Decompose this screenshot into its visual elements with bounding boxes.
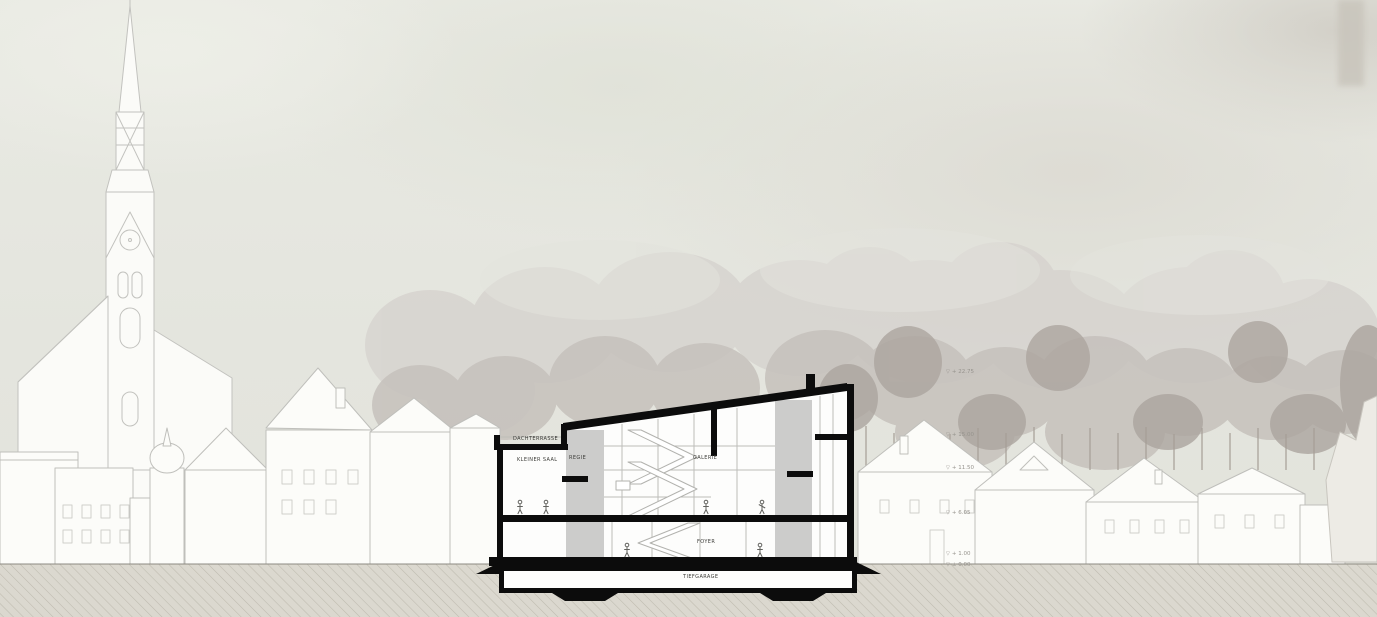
left-wall (497, 444, 503, 561)
elevation-marker: ▽ + 6.05 (946, 511, 970, 517)
elevation-marker: ▽ + 11.50 (946, 466, 974, 472)
level-triangle-icon: ▽ (946, 370, 950, 375)
elevation-value: + 15.00 (952, 433, 974, 439)
elevation-value: ± 0.00 (952, 563, 971, 569)
core-right-landing (787, 471, 813, 477)
stair-landing (616, 481, 630, 490)
level-triangle-icon: ▽ (946, 433, 950, 438)
mid-slab (503, 515, 847, 522)
elevation-value: + 11.50 (952, 466, 974, 472)
roof-step-box (806, 374, 815, 390)
terrace-roof (494, 444, 568, 450)
scene-svg (0, 0, 1377, 617)
building-core-left (566, 430, 604, 561)
elevation-marker: ▽ + 15.00 (946, 433, 974, 439)
level-triangle-icon: ▽ (946, 466, 950, 471)
elevation-value: + 1.00 (952, 552, 971, 558)
core-left-landing (562, 476, 588, 482)
label-dachterrasse: DACHTERRASSE (513, 437, 558, 442)
label-kleiner-saal: KLEINER SAAL (517, 458, 558, 463)
annex-shelf (815, 434, 847, 440)
elevation-value: + 22.75 (952, 370, 974, 376)
level-triangle-icon: ▽ (946, 563, 950, 568)
right-wall (847, 384, 854, 561)
tree-line-background (365, 228, 1377, 470)
label-galerie: GALERIE (693, 456, 717, 461)
architectural-section-board: DACHTERRASSE KLEINER SAAL REGIE GALERIE … (0, 0, 1377, 617)
elevation-marker: ▽ + 22.75 (946, 370, 974, 376)
level-triangle-icon: ▽ (946, 552, 950, 557)
label-tiefgarage: TIEFGARAGE (683, 575, 719, 580)
building-core-right (775, 400, 812, 561)
slope-upstand (561, 424, 567, 446)
level-triangle-icon: ▽ (946, 511, 950, 516)
elevation-marker: ▽ ± 0.00 (946, 563, 970, 569)
ground-slab (489, 557, 857, 566)
label-foyer: FOYER (697, 540, 715, 545)
elevation-value: + 6.05 (952, 511, 971, 517)
garage-box (504, 571, 852, 588)
interior-column (711, 408, 717, 456)
label-regie: REGIE (569, 456, 586, 461)
elevation-marker: ▽ + 1.00 (946, 552, 970, 558)
